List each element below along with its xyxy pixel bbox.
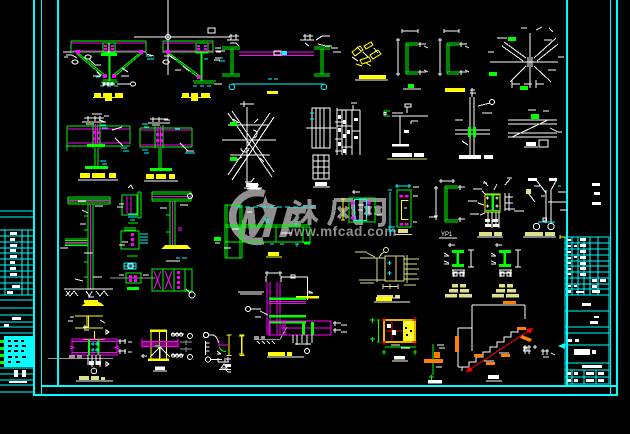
- svg-text:www.mfcad.com: www.mfcad.com: [282, 224, 397, 239]
- svg-text:YP1: YP1: [441, 232, 453, 238]
